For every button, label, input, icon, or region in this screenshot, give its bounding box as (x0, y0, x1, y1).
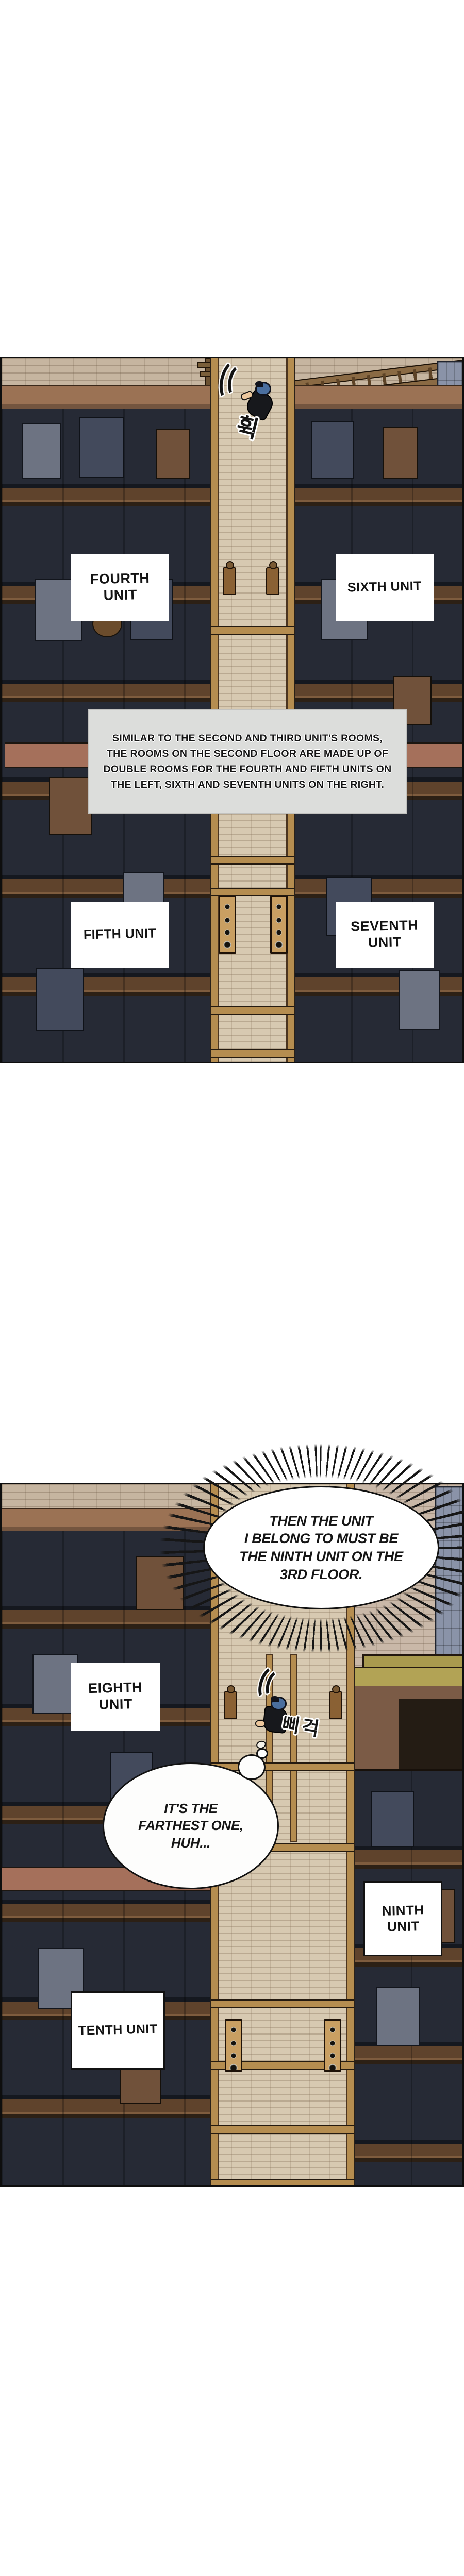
walkway-lantern (223, 567, 236, 595)
unit-label-ninth: NINTH UNIT (363, 1881, 442, 1956)
furniture-silhouette (22, 423, 61, 479)
walkway-lantern (224, 1691, 237, 1719)
character-head (255, 382, 271, 396)
furniture-silhouette (79, 417, 124, 478)
walkway-roof-left (2, 385, 212, 412)
sfx-creak: 삐걱 (281, 1714, 323, 1739)
unit-label-tenth: TENTH UNIT (71, 1991, 165, 2070)
unit-label-seventh: SEVENTH UNIT (336, 902, 434, 968)
unit-label-fourth: FOURTH UNIT (71, 554, 169, 621)
unit-label-sixth: SIXTH UNIT (336, 554, 434, 621)
speech-burst-bubble: THEN THE UNIT I BELONG TO MUST BE THE NI… (203, 1486, 439, 1609)
walkway-rooms-right (350, 1769, 464, 2187)
narration-box: SIMILAR TO THE SECOND AND THIRD UNIT'S R… (88, 709, 407, 814)
furniture-silhouette (371, 1791, 414, 1847)
thought-bubble-dot (256, 1748, 268, 1759)
walkway-plaque (225, 2019, 242, 2072)
walkway-plaque (270, 896, 288, 954)
furniture-silhouette (383, 427, 418, 479)
furniture-silhouette (376, 1987, 420, 2046)
walkway-lantern (329, 1691, 342, 1719)
motion-lines (220, 360, 243, 401)
furniture-silhouette (156, 429, 190, 479)
panel-second-floor: 휙 FOURTH UNIT SIXTH UNIT FIFTH UNIT SEVE… (0, 357, 464, 1063)
furniture-silhouette (311, 421, 354, 479)
furniture-silhouette (36, 968, 84, 1031)
furniture-silhouette (49, 777, 92, 835)
walkway-roof-right (290, 385, 464, 412)
walkway-plaque (219, 896, 236, 954)
building-face (350, 1686, 464, 1769)
webtoon-page: 휙 FOURTH UNIT SIXTH UNIT FIFTH UNIT SEVE… (0, 0, 464, 2576)
walkway-lantern (266, 567, 279, 595)
walkway-plaque (324, 2019, 341, 2072)
thought-bubble: IT'S THE FARTHEST ONE, HUH... (103, 1762, 279, 1889)
unit-label-fifth: FIFTH UNIT (71, 902, 169, 968)
furniture-silhouette (399, 970, 440, 1030)
